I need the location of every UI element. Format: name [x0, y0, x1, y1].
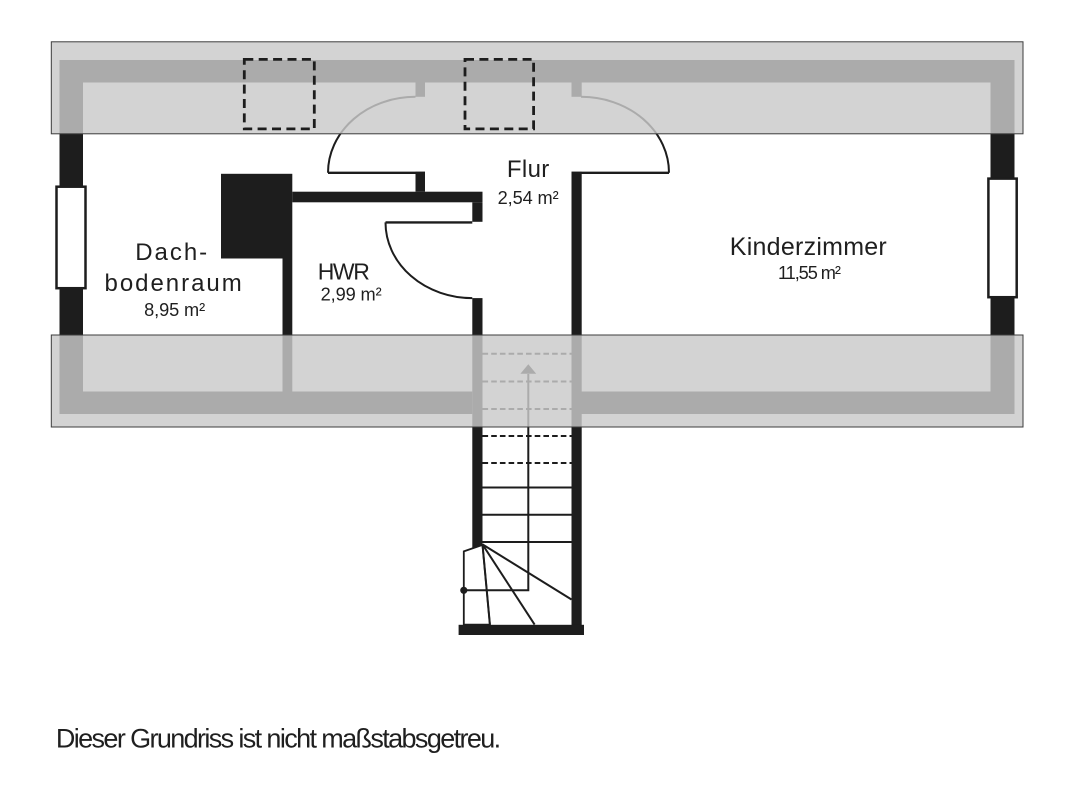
svg-text:Kinderzimmer: Kinderzimmer	[730, 233, 887, 261]
svg-text:Dieser Grundriss ist nicht maß: Dieser Grundriss ist nicht maßstabsgetre…	[56, 723, 500, 753]
svg-text:2,54 m²: 2,54 m²	[498, 188, 559, 208]
svg-text:Dach-: Dach-	[135, 239, 209, 266]
svg-text:11,55 m²: 11,55 m²	[778, 263, 841, 283]
svg-text:bodenraum: bodenraum	[105, 270, 244, 297]
svg-text:2,99 m²: 2,99 m²	[321, 284, 382, 304]
svg-text:HWR: HWR	[318, 259, 370, 285]
svg-text:8,95 m²: 8,95 m²	[144, 300, 205, 320]
svg-text:Flur: Flur	[507, 156, 550, 183]
